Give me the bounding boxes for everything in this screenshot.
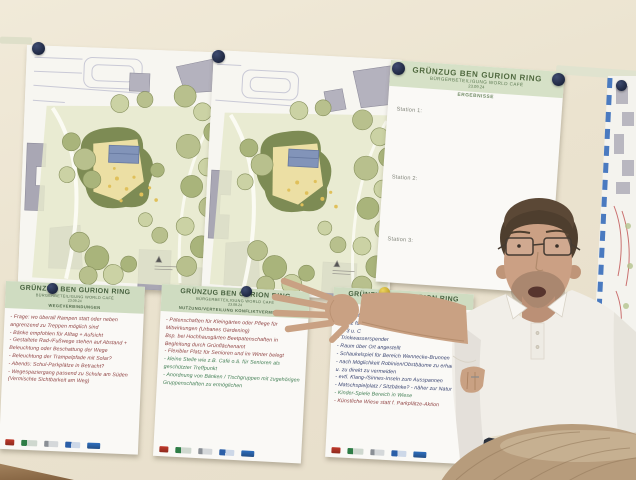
logo-green bbox=[175, 447, 191, 454]
magnet-pin bbox=[47, 283, 58, 294]
workshop-photo: GRÜNZUG BEN GURION RING BÜRGERBETEILIGUN… bbox=[0, 0, 636, 480]
pointing-arm bbox=[275, 281, 468, 344]
logo-green bbox=[21, 440, 37, 447]
logo-red bbox=[159, 446, 168, 452]
magnet-pin bbox=[616, 80, 627, 91]
flipchart-wegeverbindungen: GRÜNZUG BEN GURION RING BÜRGERBETEILIGUN… bbox=[0, 281, 145, 455]
magnet-pin bbox=[32, 42, 45, 55]
site-plan-1 bbox=[18, 45, 231, 293]
wall-rail-left bbox=[0, 37, 32, 45]
presenter bbox=[250, 180, 636, 480]
magnet-pin bbox=[552, 73, 565, 86]
furniture-corner bbox=[0, 462, 74, 480]
logo-gray bbox=[198, 448, 212, 455]
logo-red bbox=[5, 439, 14, 445]
station-1-label: Station 1: bbox=[396, 107, 422, 115]
magnet-pin bbox=[212, 50, 225, 63]
logo-gray bbox=[44, 441, 58, 448]
logo-blue-egr bbox=[219, 449, 234, 456]
logo-blue bbox=[87, 443, 100, 450]
partner-logos bbox=[5, 438, 132, 451]
logo-blue-egr bbox=[65, 442, 80, 449]
presenter-mouth bbox=[528, 287, 546, 298]
site-plan-1-drawing bbox=[18, 45, 231, 293]
magnet-pin bbox=[392, 62, 405, 75]
